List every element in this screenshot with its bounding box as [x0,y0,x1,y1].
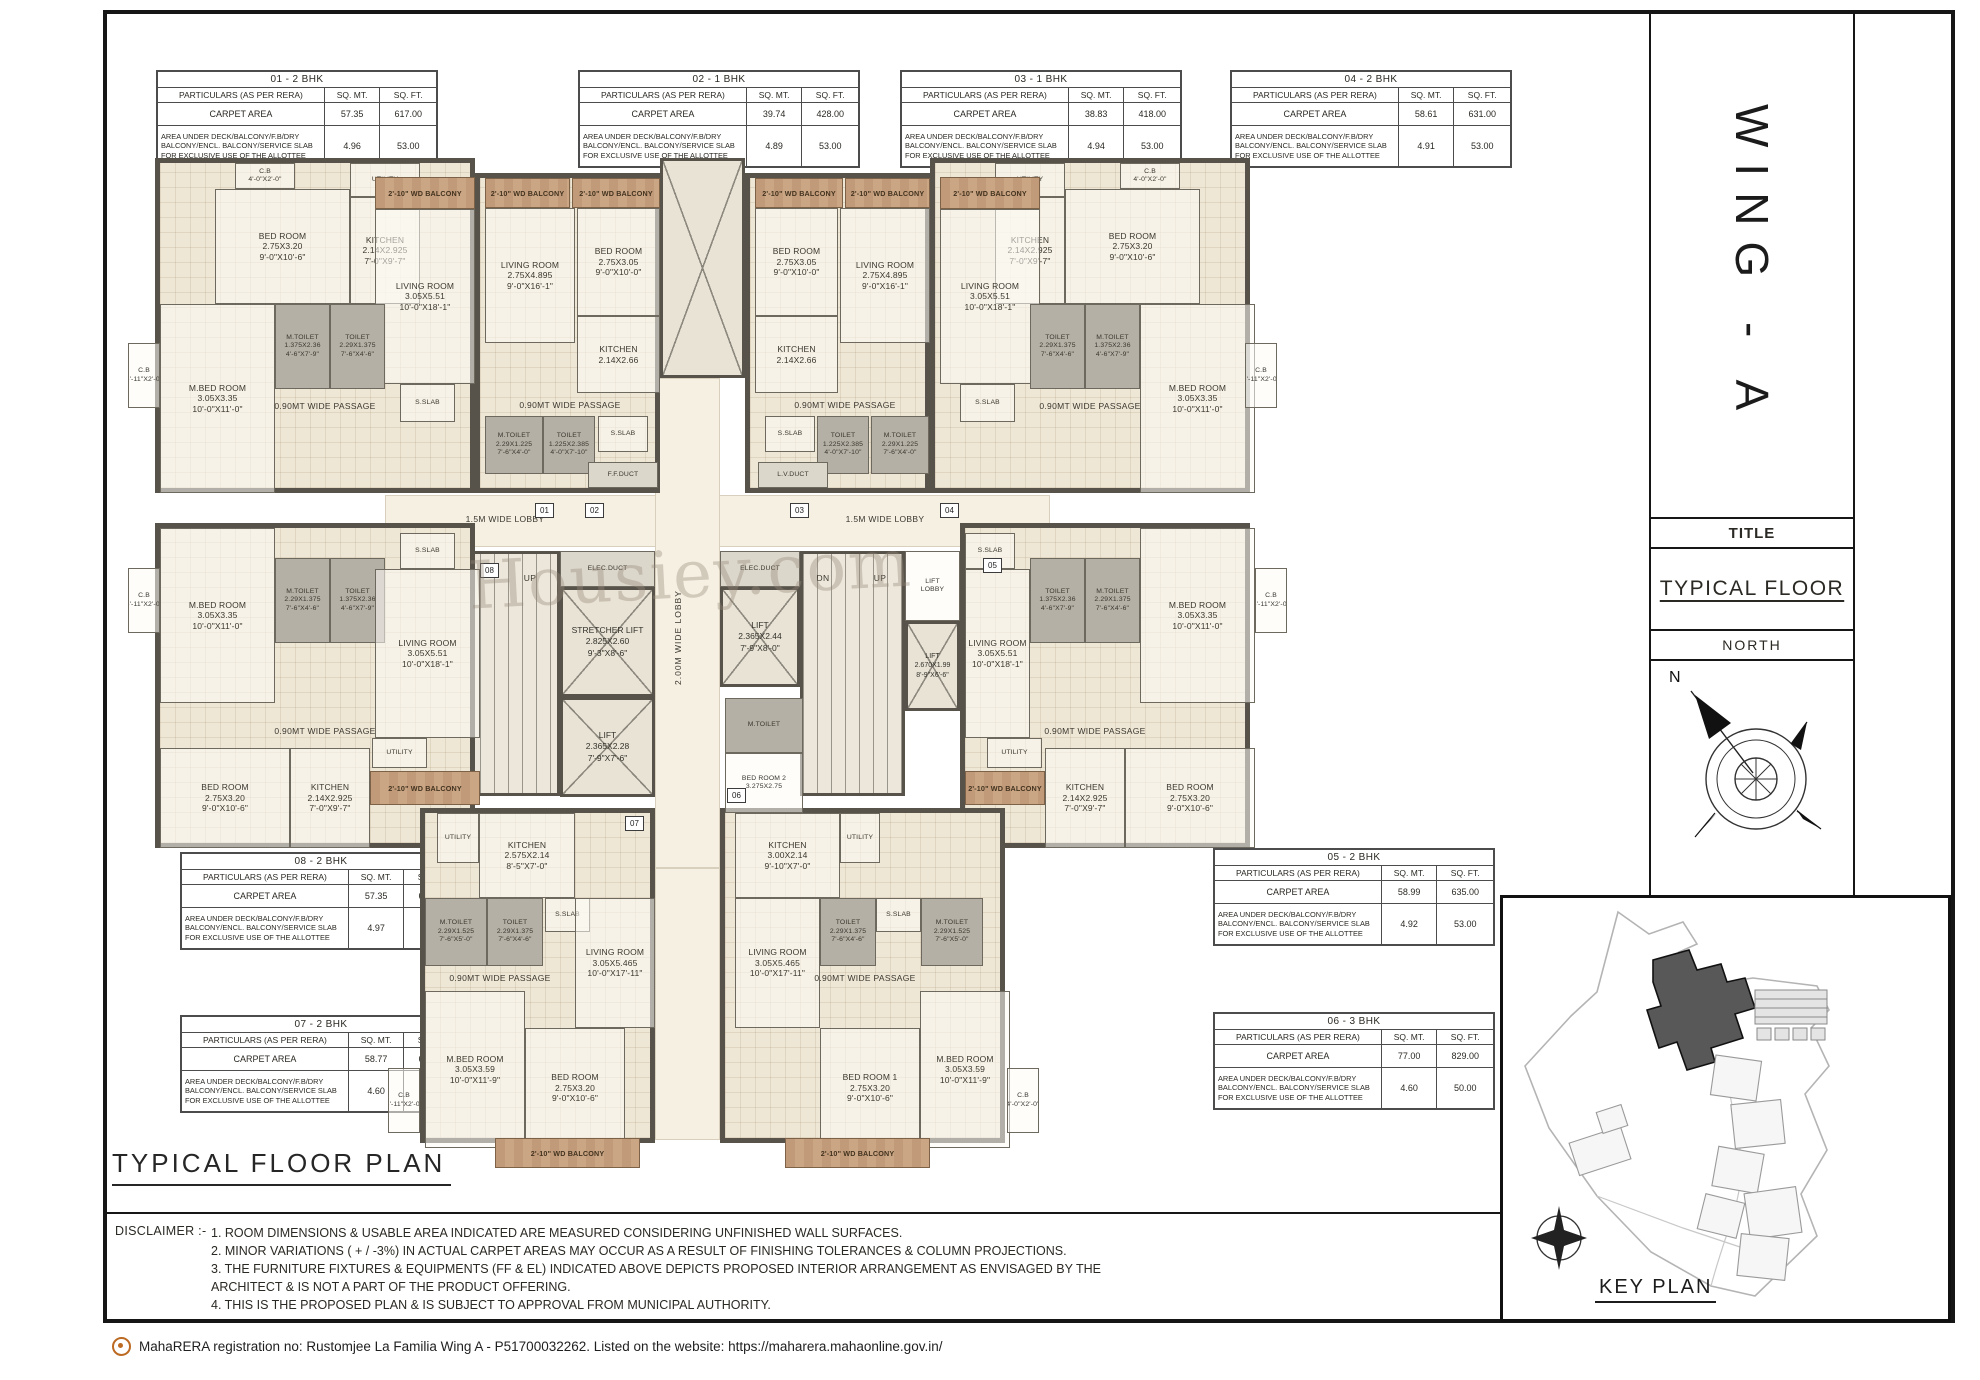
room-utility: UTILITY [372,738,427,768]
area-table: 04 - 2 BHK PARTICULARS (AS PER RERA) SQ.… [1230,70,1512,168]
unit-tag: 01 [535,503,554,518]
room-cupboard: C.B 3'-11"X2'-0" [1245,343,1277,408]
room-balcony: 2'-10" WD BALCONY [375,177,475,209]
area-table-header: PARTICULARS (AS PER RERA) SQ. MT. SQ. FT… [158,88,436,103]
area-table-header: PARTICULARS (AS PER RERA) SQ. MT. SQ. FT… [1232,88,1510,103]
elec-duct: ELEC.DUCT [560,551,655,587]
title-label: TITLE [1651,519,1853,549]
carpet-sqmt-value: 77.00 [1382,1045,1438,1067]
room-master-bedroom: M.BED ROOM 3.05X3.35 10'-0"X11'-0" [160,528,275,703]
keyplan-compass-icon [1531,1206,1587,1270]
key-plan-drawing [1503,898,1948,1319]
disclaimer-item: 2. MINOR VARIATIONS ( + / -3%) IN ACTUAL… [211,1242,1491,1260]
room-cupboard: C.B 4'-0"X2'-0" [1007,1068,1039,1133]
area-table-title: 03 - 1 BHK [902,72,1180,88]
lower-corridor [655,868,720,1140]
unit-tag: 06 [727,788,746,803]
carpet-area-row: CARPET AREA 58.61 631.00 [1232,103,1510,126]
room-utility: UTILITY [437,813,479,863]
room-cupboard: C.B 3'-11"X2'-0" [388,1068,420,1133]
room-kitchen: KITCHEN 2.14X2.925 7'-0"X9'-7" [1045,748,1125,848]
room-balcony: 2'-10" WD BALCONY [965,771,1045,805]
room-balcony: 2'-10" WD BALCONY [845,178,930,208]
room-master-bedroom: M.BED ROOM 3.05X3.35 10'-0"X11'-0" [1140,304,1255,493]
room-toilet: TOILET 2.29X1.375 7'-6"X4'-6" [820,898,876,966]
sheet-title-box: TYPICAL FLOOR [1651,549,1853,631]
room-service-slab: S.SLAB [400,384,455,422]
room-master-toilet: M.TOILET 2.29X1.525 7'-6"X5'-0" [921,898,983,966]
col-sqft: SQ. FT. [1437,866,1493,880]
passage-label: 0.90MT WIDE PASSAGE [260,401,390,411]
room-cupboard: C.B 5'-11"X2'-0" [128,568,160,633]
room-service-slab: S.SLAB [765,416,815,452]
room-service-slab: S.SLAB [876,898,921,932]
carpet-area-label: CARPET AREA [1232,103,1399,125]
room-master-toilet: M.TOILET 1.375X2.36 4'-6"X7'-9" [1085,304,1140,389]
room-living: LIVING ROOM 3.05X5.51 10'-0"X18'-1" [940,209,1040,384]
col-sqmt: SQ. MT. [1069,88,1125,102]
room-master-toilet: M.TOILET 2.29X1.375 7'-6"X4'-6" [1085,558,1140,643]
room-service-slab: S.SLAB [960,384,1015,422]
north-compass: N [1651,661,1853,889]
passage-label: 0.90MT WIDE PASSAGE [800,973,930,983]
col-sqmt: SQ. MT. [1382,866,1438,880]
room-kitchen: KITCHEN 2.14X2.925 7'-0"X9'-7" [290,748,370,848]
stretcher-lift: STRETCHER LIFT 2.825X2.60 9'-3"X8'-6" [560,587,655,697]
room-balcony: 2'-10" WD BALCONY [370,771,480,805]
carpet-sqmt-value: 39.74 [747,103,803,125]
stair-up-label: UP [865,573,895,583]
room-master-toilet: M.TOILET 2.29X1.225 7'-6"X4'-0" [485,416,543,474]
unit-tag: 05 [983,558,1002,573]
carpet-area-row: CARPET AREA 57.35 617.00 [158,103,436,126]
passage-label: 0.90MT WIDE PASSAGE [255,726,395,736]
unit-01: C.B 4'-0"X2'-0" BED ROOM 2.75X3.20 9'-0"… [155,158,475,493]
compass-rose-icon [1651,661,1851,881]
stair-up-label: UP [515,573,545,583]
disclaimer-box: DISCLAIMER :- 1. ROOM DIMENSIONS & USABL… [107,1212,1502,1321]
room-master-toilet: M.TOILET 2.29X1.375 7'-6"X4'-6" [275,558,330,643]
room-bedroom: BED ROOM 2.75X3.20 9'-0"X10'-6" [215,189,350,304]
room-bedroom: BED ROOM 2.75X3.05 9'-0"X10'-0" [577,208,660,316]
room-kitchen: KITCHEN 2.14X2.66 [755,316,838,393]
deck-sqft-value: 53.00 [1437,904,1493,944]
col-sqft: SQ. FT. [380,88,436,102]
room-balcony: 2'-10" WD BALCONY [785,1138,930,1168]
room-toilet: TOILET 2.29X1.375 7'-6"X4'-6" [1030,304,1085,389]
room-service-slab: S.SLAB [400,533,455,569]
carpet-area-label: CARPET AREA [158,103,325,125]
area-table-title: 04 - 2 BHK [1232,72,1510,88]
deck-sqft-value: 50.00 [1437,1068,1493,1108]
unit-tag: 07 [625,816,644,831]
lift-1: LIFT 2.365X2.28 7'-9"X7'-6" [560,697,655,797]
room-bedroom: BED ROOM 2.75X3.20 9'-0"X10'-6" [525,1028,625,1148]
room-bedroom-2: BED ROOM 2 3.275X2.75 [725,753,803,813]
key-plan-box: KEY PLAN [1500,895,1951,1322]
deck-sqmt-value: 4.92 [1382,904,1438,944]
room-bedroom: BED ROOM 2.75X3.05 9'-0"X10'-0" [755,208,838,316]
area-table-header: PARTICULARS (AS PER RERA) SQ. MT. SQ. FT… [902,88,1180,103]
col-sqmt: SQ. MT. [747,88,803,102]
carpet-area-label: CARPET AREA [580,103,747,125]
col-sqft: SQ. FT. [1437,1030,1493,1044]
sheet-title: TYPICAL FLOOR [1660,577,1844,601]
carpet-area-row: CARPET AREA 38.83 418.00 [902,103,1180,126]
room-bedroom: BED ROOM 2.75X3.20 9'-0"X10'-6" [160,748,290,848]
typical-floor-plan-drawing: 1.5M WIDE LOBBY 1.5M WIDE LOBBY 2.00M WI… [145,148,1260,1153]
col-sqmt: SQ. MT. [1399,88,1455,102]
passage-label: 0.90MT WIDE PASSAGE [775,400,915,410]
room-kitchen: KITCHEN 3.00X2.14 9'-10"X7'-0" [735,813,840,898]
carpet-sqft-value: 631.00 [1454,103,1510,125]
north-n-label: N [1669,669,1681,687]
deck-sqft-value: 53.00 [1454,126,1510,166]
room-toilet: TOILET 2.29X1.375 7'-6"X4'-6" [487,898,543,966]
maharera-footer: MahaRERA registration no: Rustomjee La F… [112,1337,942,1356]
room-kitchen: KITCHEN 2.14X2.66 [577,316,660,393]
room-balcony: 2'-10" WD BALCONY [495,1138,640,1168]
carpet-sqft-value: 617.00 [380,103,436,125]
room-cupboard: C.B 5'-11"X2'-0" [128,343,160,408]
room-living: LIVING ROOM 2.75X4.895 9'-0"X16'-1" [485,208,575,343]
room-master-bedroom: M.BED ROOM 3.05X3.35 10'-0"X11'-0" [1140,528,1255,703]
wing-a-footprint [1647,950,1755,1070]
unit-06: M.TOILET BED ROOM 2 3.275X2.75 KITCHEN 3… [720,808,1005,1143]
central-lobby-label: 2.00M WIDE LOBBY [673,563,683,713]
room-master-toilet: M.TOILET 1.375X2.36 4'-6"X7'-9" [275,304,330,389]
staircase-right [800,551,905,796]
passage-label: 0.90MT WIDE PASSAGE [435,973,565,983]
col-sqft: SQ. FT. [1124,88,1180,102]
room-balcony: 2'-10" WD BALCONY [572,178,660,208]
unit-03: 2'-10" WD BALCONY 2'-10" WD BALCONY BED … [745,173,930,493]
room-living: LIVING ROOM 3.05X5.51 10'-0"X18'-1" [375,569,480,738]
room-balcony: 2'-10" WD BALCONY [485,178,570,208]
unit-04: C.B 4'-0"X2'-0" BED ROOM 2.75X3.20 9'-0"… [930,158,1250,493]
lift-2: LIFT 2.365X2.44 7'-9"X8'-0" [720,587,800,687]
disclaimer-item: 4. THIS IS THE PROPOSED PLAN & IS SUBJEC… [211,1296,1491,1314]
room-living: LIVING ROOM 3.05X5.51 10'-0"X18'-1" [375,209,475,384]
room-master-bedroom: M.BED ROOM 3.05X3.59 10'-0"X11'-9" [920,991,1010,1148]
room-kitchen: KITCHEN 2.575X2.14 8'-5"X7'-0" [479,813,575,898]
elec-duct: ELEC.DUCT [720,551,800,587]
disclaimer-item: 1. ROOM DIMENSIONS & USABLE AREA INDICAT… [211,1224,1491,1242]
title-block-column: WING - A TITLE TYPICAL FLOOR NORTH N [1649,14,1855,895]
room-utility: UTILITY [840,813,880,863]
room-toilet: TOILET 2.29X1.375 7'-6"X4'-6" [330,304,385,389]
carpet-sqmt-value: 38.83 [1069,103,1125,125]
col-sqmt: SQ. MT. [325,88,381,102]
central-void [660,158,745,378]
col-sqft: SQ. FT. [1454,88,1510,102]
lift-4: LIFT 2.670X1.99 8'-9"X6'-6" [905,621,960,711]
room-bedroom: BED ROOM 2.75X3.20 9'-0"X10'-6" [1065,189,1200,304]
unit-tag: 08 [480,563,499,578]
ff-duct: F.F.DUCT [588,462,658,488]
room-master-toilet: M.TOILET 2.29X1.525 7'-6"X5'-0" [425,898,487,966]
room-toilet: TOILET 1.375X2.36 4'-6"X7'-9" [1030,558,1085,643]
room-cupboard: C.B 4'-0"X2'-0" [235,163,295,189]
col-particulars: PARTICULARS (AS PER RERA) [1232,88,1399,102]
col-particulars: PARTICULARS (AS PER RERA) [580,88,747,102]
room-bedroom-1: BED ROOM 1 2.75X3.20 9'-0"X10'-6" [820,1028,920,1148]
col-sqmt: SQ. MT. [1382,1030,1438,1044]
carpet-sqmt-value: 58.99 [1382,881,1438,903]
room-living: LIVING ROOM 3.05X5.51 10'-0"X18'-1" [965,569,1030,738]
unit-tag: 02 [585,503,604,518]
room-master-toilet-2: M.TOILET [725,698,803,753]
carpet-sqft-value: 418.00 [1124,103,1180,125]
deck-sqmt-value: 4.60 [1382,1068,1438,1108]
room-living: LIVING ROOM 3.05X5.465 10'-0"X17'-11" [575,898,655,1028]
lv-duct: L.V.DUCT [758,462,828,488]
stair-dn-label: DN [808,573,838,583]
room-service-slab: S.SLAB [598,416,648,452]
unit-07: UTILITY KITCHEN 2.575X2.14 8'-5"X7'-0" M… [420,808,655,1143]
carpet-sqft-value: 829.00 [1437,1045,1493,1067]
maharera-registration-text: MahaRERA registration no: Rustomjee La F… [139,1339,942,1354]
unit-tag: 03 [790,503,809,518]
room-cupboard: C.B 4'-0"X2'-0" [1120,163,1180,189]
room-living: LIVING ROOM 3.05X5.465 10'-0"X17'-11" [735,898,820,1028]
disclaimer-items: 1. ROOM DIMENSIONS & USABLE AREA INDICAT… [211,1224,1491,1314]
room-cupboard: C.B 5'-11"X2'-0" [1255,568,1287,633]
room-balcony: 2'-10" WD BALCONY [940,177,1040,209]
col-sqft: SQ. FT. [802,88,858,102]
area-table-header: PARTICULARS (AS PER RERA) SQ. MT. SQ. FT… [580,88,858,103]
room-bedroom: BED ROOM 2.75X3.20 9'-0"X10'-6" [1125,748,1255,848]
north-label: NORTH [1651,631,1853,661]
room-living: LIVING ROOM 2.75X4.895 9'-0"X16'-1" [840,208,930,343]
col-particulars: PARTICULARS (AS PER RERA) [158,88,325,102]
carpet-sqmt-value: 58.61 [1399,103,1455,125]
col-particulars: PARTICULARS (AS PER RERA) [902,88,1069,102]
disclaimer-label: DISCLAIMER :- [115,1224,206,1238]
deck-area-row: AREA UNDER DECK/BALCONY/F.B/DRY BALCONY/… [1232,126,1510,166]
room-master-bedroom: M.BED ROOM 3.05X3.35 10'-0"X11'-0" [160,304,275,493]
central-corridor [655,378,720,868]
carpet-sqft-value: 635.00 [1437,881,1493,903]
lift-lobby: LIFT LOBBY [905,551,960,621]
maharera-logo-icon [112,1337,131,1356]
carpet-area-row: CARPET AREA 39.74 428.00 [580,103,858,126]
passage-label: 0.90MT WIDE PASSAGE [1025,726,1165,736]
unit-02: 2'-10" WD BALCONY 2'-10" WD BALCONY LIVI… [475,173,660,493]
carpet-area-label: CARPET AREA [902,103,1069,125]
passage-label: 0.90MT WIDE PASSAGE [1025,401,1155,411]
page-title: TYPICAL FLOOR PLAN [112,1148,451,1186]
room-balcony: 2'-10" WD BALCONY [755,178,843,208]
wing-label: WING - A [1725,104,1779,426]
key-plan-label: KEY PLAN [1595,1276,1716,1303]
unit-05: S.SLAB M.BED ROOM 3.05X3.35 10'-0"X11'-0… [960,523,1250,848]
carpet-sqmt-value: 57.35 [325,103,381,125]
deck-sqmt-value: 4.91 [1399,126,1455,166]
unit-08: S.SLAB M.BED ROOM 3.05X3.35 10'-0"X11'-0… [155,523,475,848]
wing-box: WING - A [1651,14,1853,519]
room-master-bedroom: M.BED ROOM 3.05X3.59 10'-0"X11'-9" [425,991,525,1148]
room-master-toilet: M.TOILET 2.29X1.225 7'-6"X4'-0" [871,416,929,474]
room-utility: UTILITY [987,738,1042,768]
disclaimer-item: 3. THE FURNITURE FIXTURES & EQUIPMENTS (… [211,1260,1491,1296]
passage-label: 0.90MT WIDE PASSAGE [500,400,640,410]
floor-plan-sheet: 01 - 2 BHK PARTICULARS (AS PER RERA) SQ.… [0,0,1980,1380]
area-table-title: 02 - 1 BHK [580,72,858,88]
area-table-title: 01 - 2 BHK [158,72,436,88]
unit-tag: 04 [940,503,959,518]
carpet-sqft-value: 428.00 [802,103,858,125]
